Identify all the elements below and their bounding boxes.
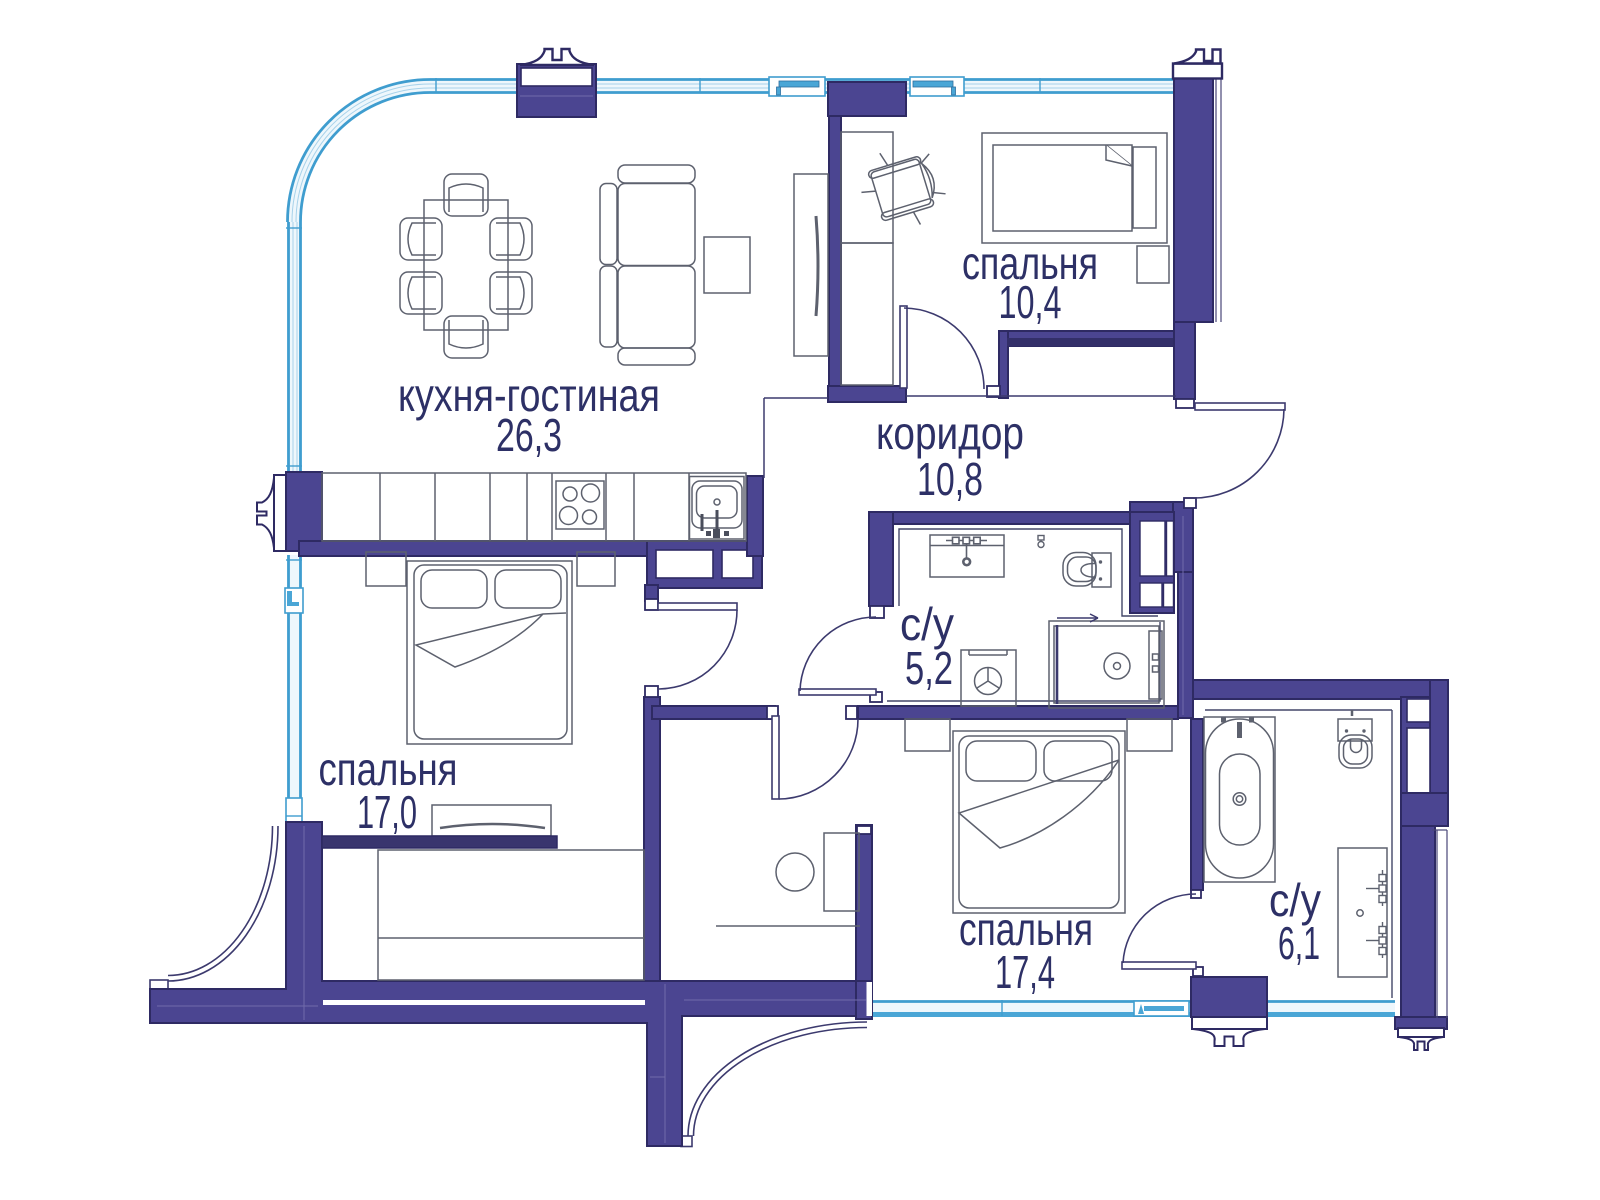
svg-text:коридор: коридор [876, 407, 1024, 459]
svg-text:6,1: 6,1 [1278, 917, 1320, 969]
svg-text:10,8: 10,8 [917, 453, 983, 505]
svg-text:26,3: 26,3 [496, 409, 562, 461]
svg-text:17,4: 17,4 [995, 946, 1055, 998]
svg-text:17,0: 17,0 [357, 786, 417, 838]
svg-text:10,4: 10,4 [999, 276, 1062, 328]
svg-text:5,2: 5,2 [905, 642, 953, 694]
